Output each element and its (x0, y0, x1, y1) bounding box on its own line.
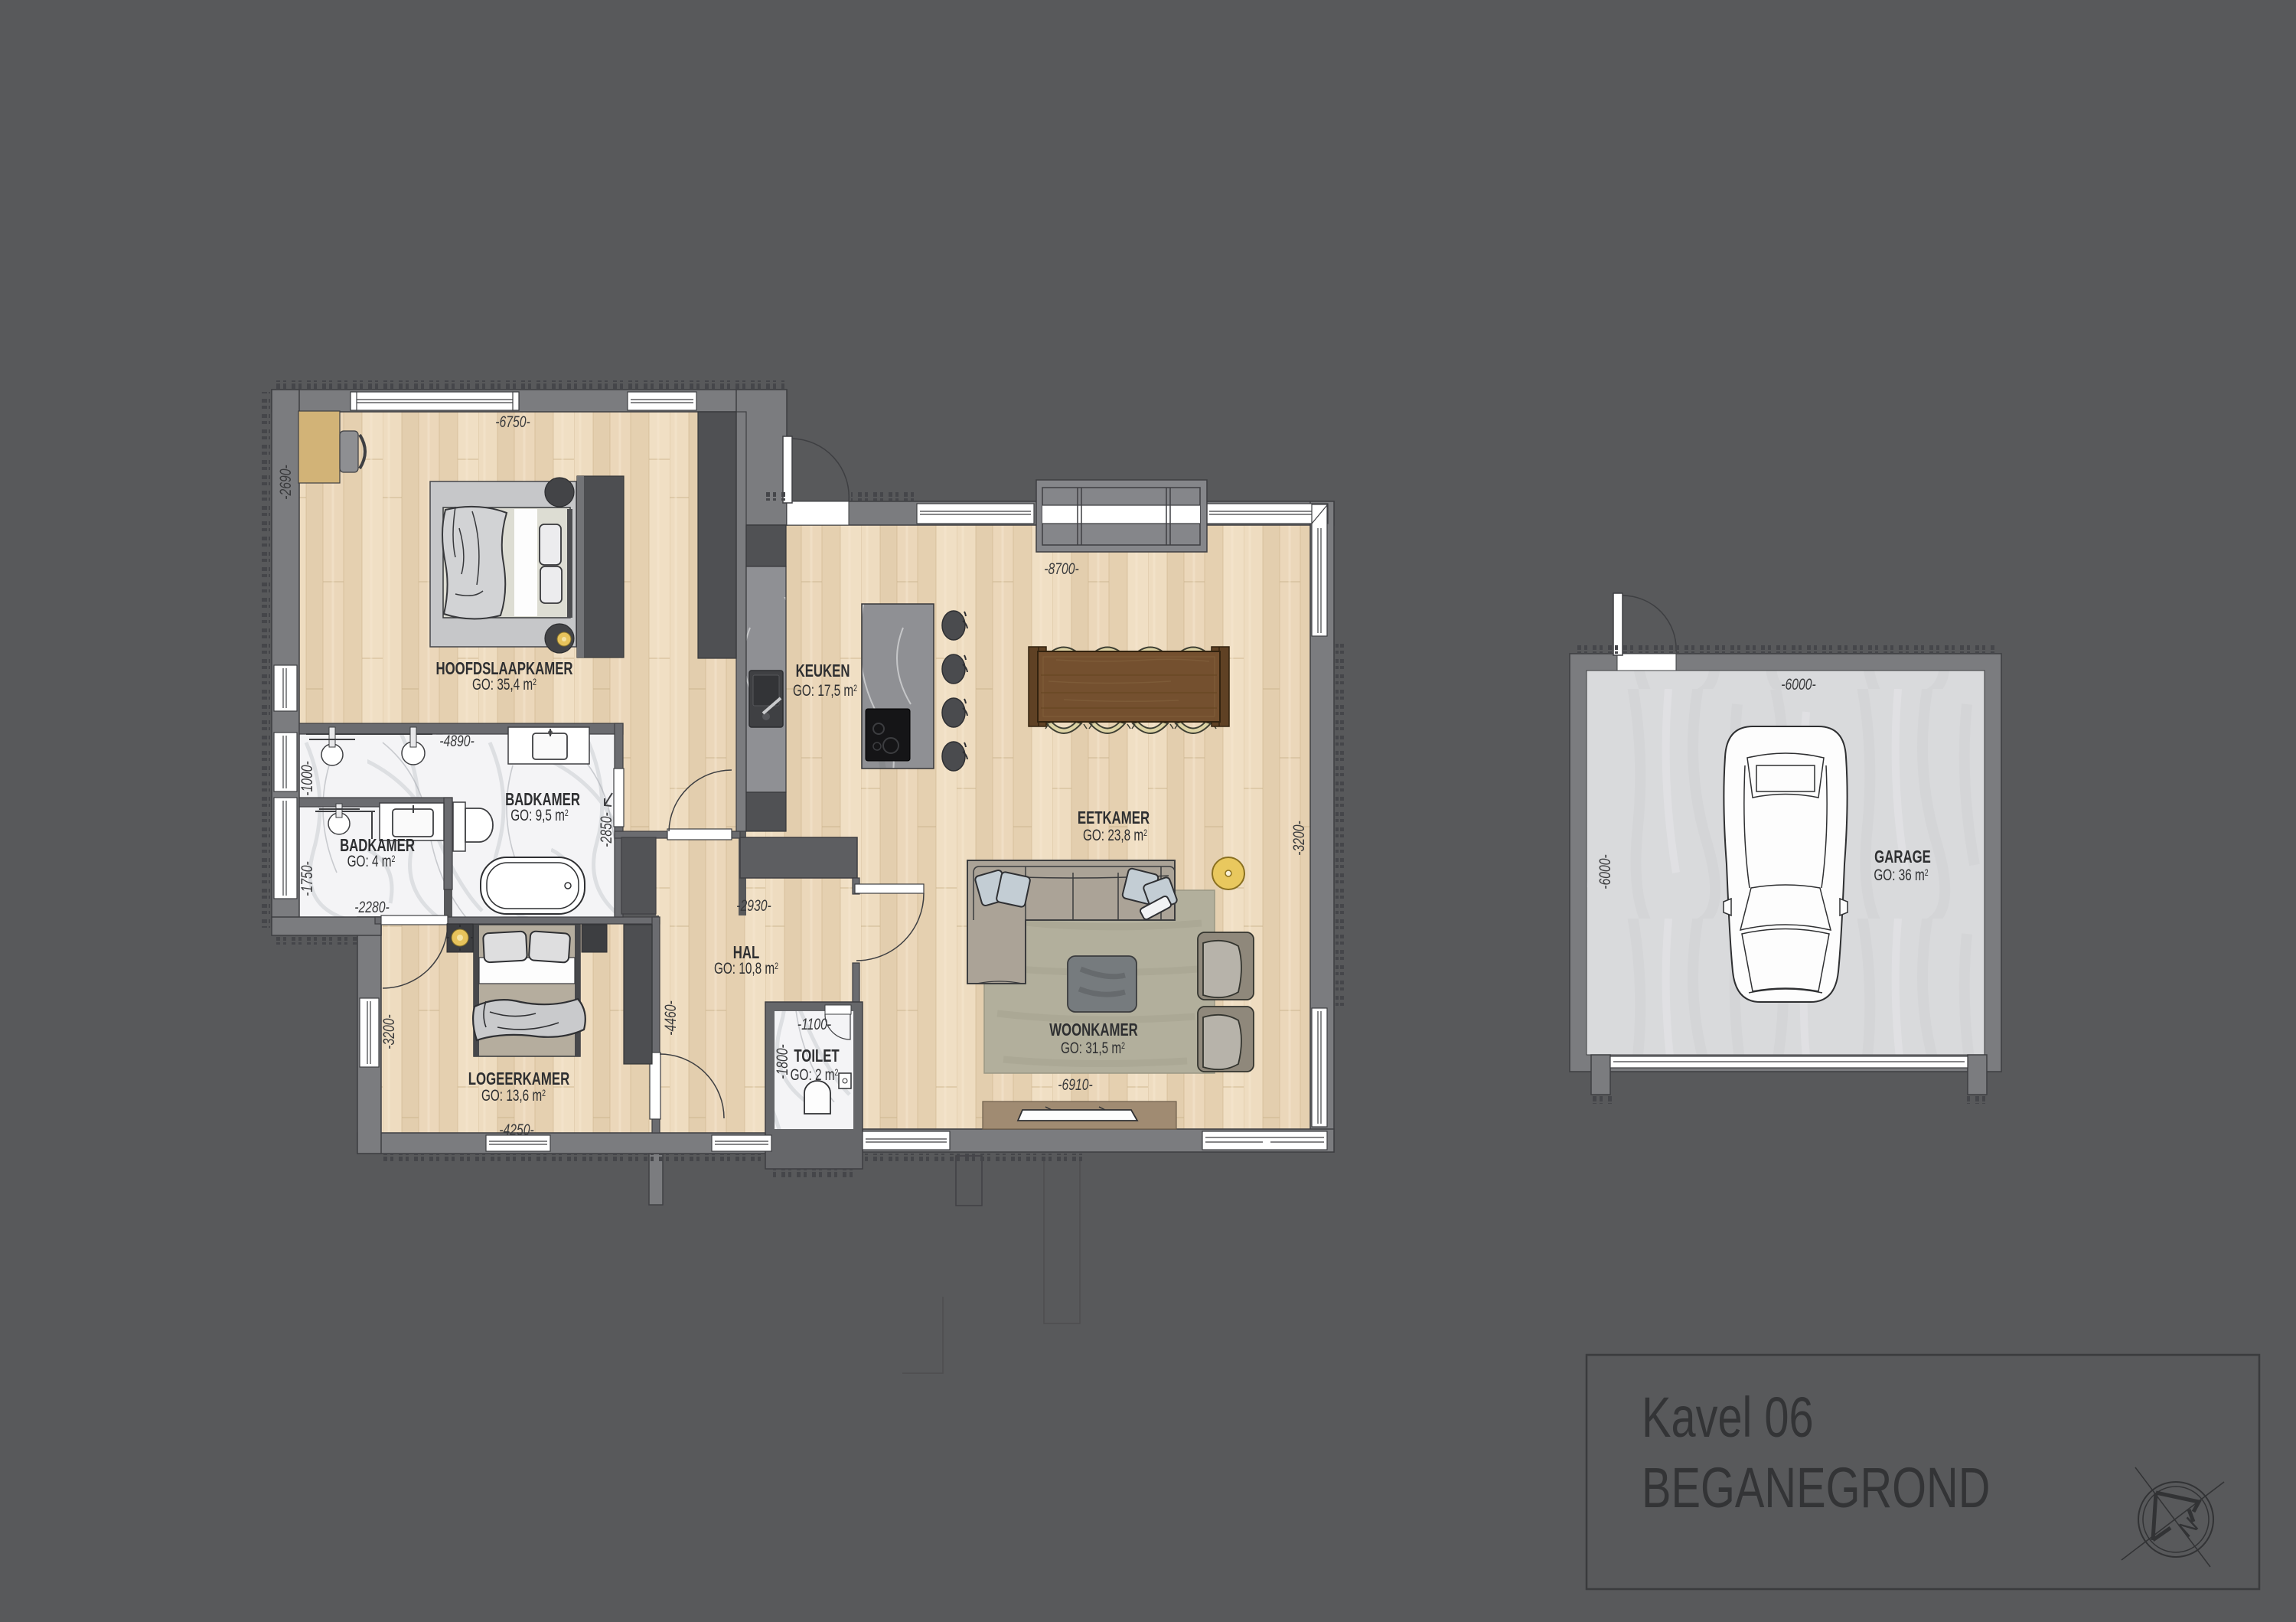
svg-text:-8700-: -8700- (1044, 560, 1079, 578)
svg-text:GO: 13,6 m2: GO: 13,6 m2 (481, 1086, 546, 1105)
svg-text:GO: 4 m2: GO: 4 m2 (347, 852, 396, 870)
svg-text:Kavel 06: Kavel 06 (1642, 1386, 1814, 1450)
svg-text:GO: 2 m2: GO: 2 m2 (791, 1066, 839, 1084)
svg-text:-4250-: -4250- (499, 1121, 534, 1139)
svg-text:-4460-: -4460- (661, 1000, 680, 1036)
svg-text:-2690-: -2690- (276, 465, 295, 500)
svg-text:-6000-: -6000- (1596, 854, 1614, 889)
svg-text:-1000-: -1000- (298, 761, 316, 796)
svg-text:-2930-: -2930- (736, 896, 771, 915)
svg-text:GO: 36 m2: GO: 36 m2 (1874, 866, 1928, 884)
svg-text:-1750-: -1750- (298, 861, 316, 896)
svg-text:GO: 23,8 m2: GO: 23,8 m2 (1083, 826, 1147, 844)
svg-text:GARAGE: GARAGE (1874, 848, 1931, 867)
svg-text:TOILET: TOILET (794, 1047, 840, 1066)
svg-text:WOONKAMER: WOONKAMER (1049, 1021, 1138, 1040)
svg-text:GO: 35,4 m2: GO: 35,4 m2 (472, 675, 536, 694)
svg-text:-3200-: -3200- (380, 1014, 398, 1049)
svg-text:-1100-: -1100- (797, 1015, 831, 1033)
svg-text:GO: 17,5 m2: GO: 17,5 m2 (793, 681, 857, 700)
svg-text:-6000-: -6000- (1781, 675, 1816, 694)
svg-text:KEUKEN: KEUKEN (796, 662, 850, 681)
svg-text:BEGANEGROND: BEGANEGROND (1642, 1457, 1990, 1520)
svg-text:-2280-: -2280- (354, 898, 390, 916)
svg-text:-4890-: -4890- (439, 732, 475, 750)
svg-text:-6750-: -6750- (495, 413, 530, 431)
svg-text:GO: 10,8 m2: GO: 10,8 m2 (714, 959, 778, 977)
svg-text:-3200-: -3200- (1290, 821, 1308, 856)
svg-text:-6910-: -6910- (1058, 1075, 1093, 1094)
svg-text:-1800-: -1800- (773, 1044, 791, 1079)
svg-text:GO: 9,5 m2: GO: 9,5 m2 (510, 806, 569, 824)
svg-text:GO: 31,5 m2: GO: 31,5 m2 (1061, 1039, 1125, 1057)
svg-text:-2850-: -2850- (597, 812, 615, 847)
